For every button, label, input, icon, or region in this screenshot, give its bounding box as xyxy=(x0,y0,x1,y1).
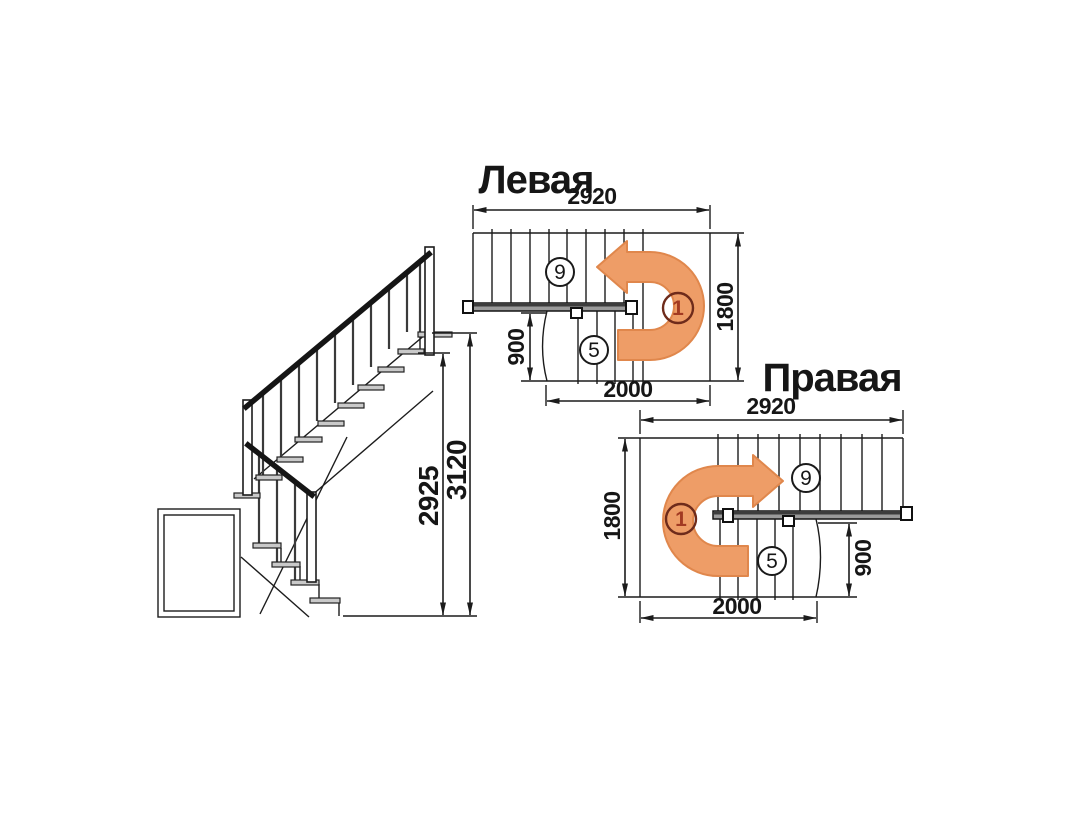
svg-text:1: 1 xyxy=(672,297,684,320)
elevation-view: 3120 2925 xyxy=(158,247,477,617)
svg-text:2920: 2920 xyxy=(746,393,795,419)
plan-right-step-9: 9 xyxy=(792,464,820,492)
svg-text:2000: 2000 xyxy=(712,593,761,619)
drawing-canvas: 3120 2925 Левая 2920 xyxy=(0,0,1086,816)
svg-text:900: 900 xyxy=(850,540,876,577)
svg-text:1800: 1800 xyxy=(599,491,625,540)
plan-left-view: Левая 2920 xyxy=(463,158,744,406)
dim-total-height: 3120 xyxy=(441,440,472,500)
svg-text:9: 9 xyxy=(800,467,812,490)
plan-left-step-5: 5 xyxy=(580,336,608,364)
svg-text:2920: 2920 xyxy=(567,183,616,209)
svg-text:2000: 2000 xyxy=(603,376,652,402)
staircase-diagram: 3120 2925 Левая 2920 xyxy=(0,0,1086,816)
elevation-lower-steps xyxy=(281,337,420,616)
turn-arrow-left xyxy=(597,241,704,360)
plan-left-handrail-bar xyxy=(463,301,637,318)
handrail-upper xyxy=(246,254,429,407)
svg-text:9: 9 xyxy=(554,261,566,284)
plan-left-dim-900: 900 xyxy=(503,313,547,380)
svg-text:5: 5 xyxy=(588,339,600,362)
dim-flight-height: 2925 xyxy=(413,466,444,526)
plan-left-step-9: 9 xyxy=(546,258,574,286)
svg-text:1: 1 xyxy=(675,508,687,531)
svg-text:1800: 1800 xyxy=(712,282,738,331)
elevation-dimensions: 3120 2925 xyxy=(413,333,477,615)
plan-right-dim-1800: 1800 xyxy=(599,439,625,596)
svg-text:5: 5 xyxy=(766,550,778,573)
plan-right-dim-900: 900 xyxy=(818,523,876,596)
elevation-balusters-lower xyxy=(259,452,295,580)
svg-text:900: 900 xyxy=(503,329,529,366)
elevation-pedestal-box xyxy=(158,509,240,617)
plan-left-dim-1800: 1800 xyxy=(712,234,738,380)
plan-right-step-5: 5 xyxy=(758,547,786,575)
